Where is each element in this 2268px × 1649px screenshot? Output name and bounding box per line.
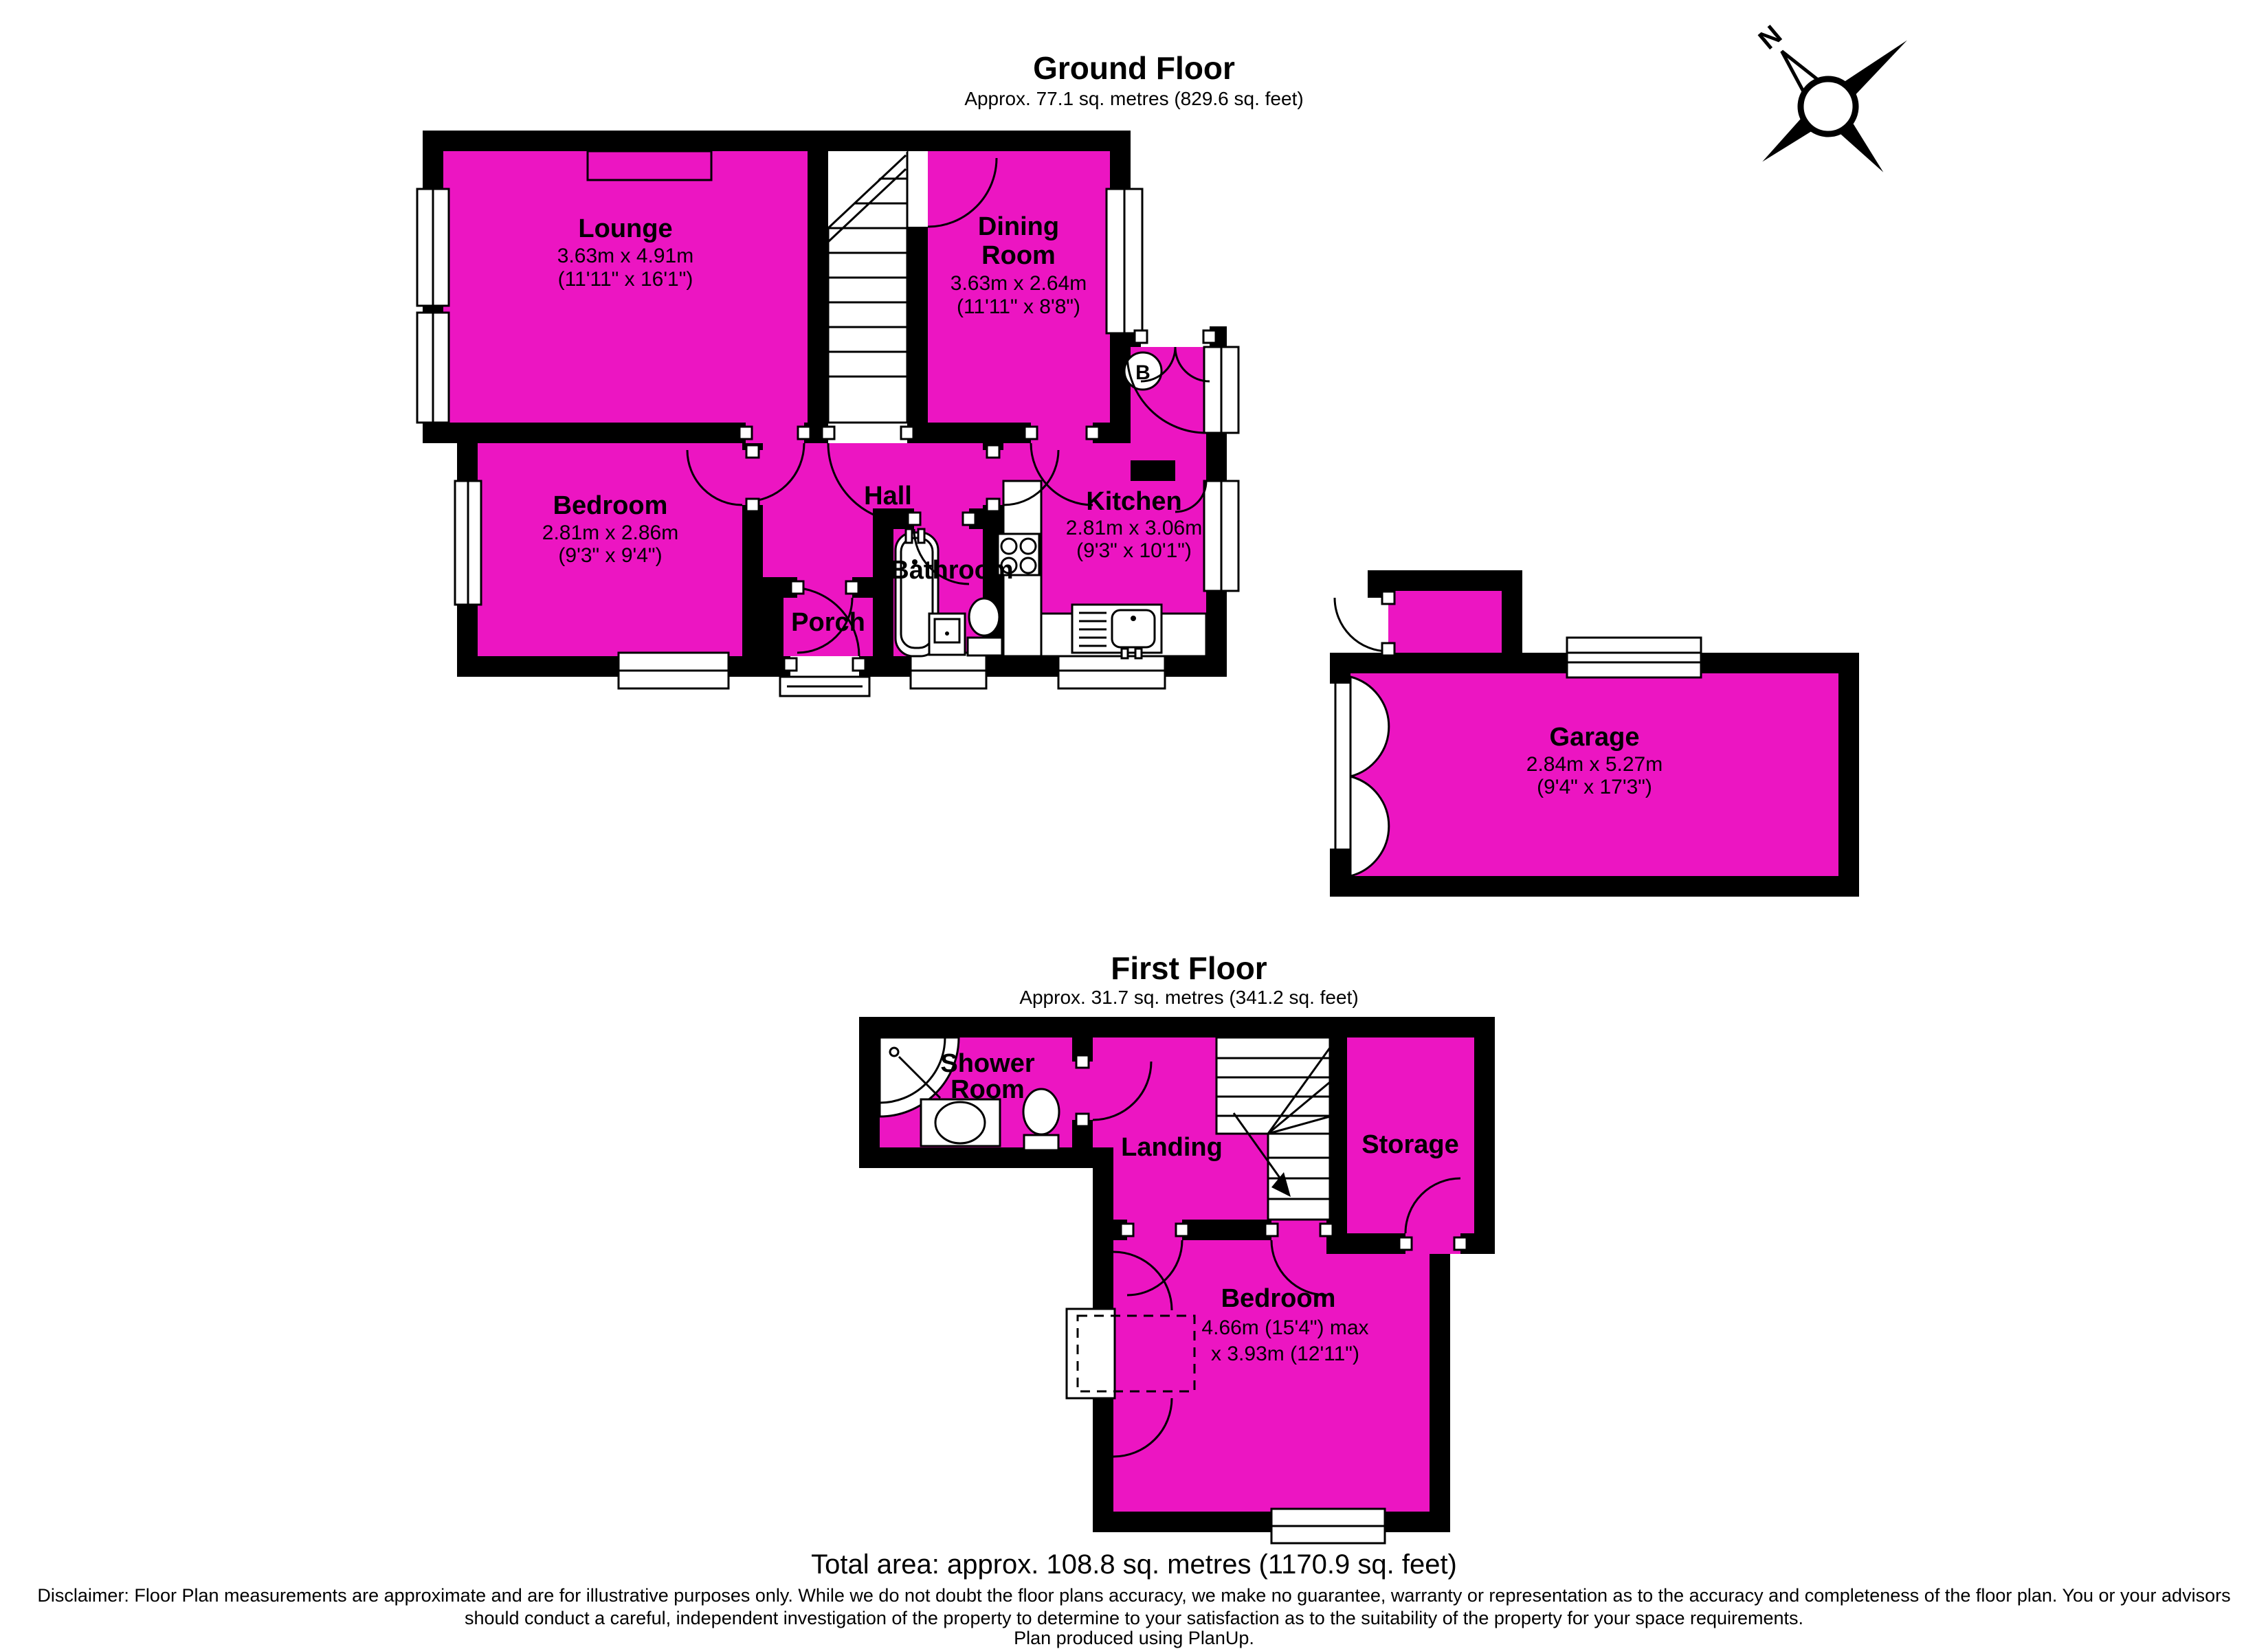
bedroom-ff-dims-2: x 3.93m (12'11") xyxy=(1211,1343,1359,1365)
dining-dims-imperial: (11'11" x 8'8") xyxy=(957,295,1080,318)
compass-north-label: N xyxy=(1753,20,1788,56)
lounge-dims-imperial: (11'11" x 16'1") xyxy=(558,268,693,291)
porch-label: Porch xyxy=(791,608,865,637)
garage-window xyxy=(1567,638,1701,677)
kitchen-dims-metric: 2.81m x 3.06m xyxy=(1066,517,1202,539)
porch-step xyxy=(780,677,869,696)
bathroom-label: Bathroom xyxy=(890,556,1013,585)
floor-plan-page: Ground Floor Approx. 77.1 sq. metres (82… xyxy=(0,0,2268,1649)
ground-floor-plan: B xyxy=(417,131,1238,696)
hall-label: Hall xyxy=(864,482,912,511)
landing-label: Landing xyxy=(1121,1133,1223,1162)
sink-icon xyxy=(921,1099,1000,1146)
window xyxy=(417,189,449,306)
room-hall-lower xyxy=(763,508,873,577)
window xyxy=(1107,189,1142,333)
storage-label: Storage xyxy=(1361,1130,1458,1159)
dining-label-2: Room xyxy=(981,241,1056,270)
sink-icon xyxy=(929,614,965,655)
staircase-ground xyxy=(828,151,907,423)
bedroom-gf-dims-metric: 2.81m x 2.86m xyxy=(542,521,678,544)
dining-label-1: Dining xyxy=(978,212,1059,241)
kitchen-dims-imperial: (9'3" x 10'1") xyxy=(1076,539,1192,562)
lounge-dims-metric: 3.63m x 4.91m xyxy=(557,245,693,267)
garage-plan: Garage 2.84m x 5.27m (9'4" x 17'3") xyxy=(1330,570,1859,897)
bedroom-ff-dims-1: 4.66m (15'4") max xyxy=(1201,1316,1368,1339)
bedroom-gf-dims-imperial: (9'3" x 9'4") xyxy=(558,544,662,567)
window xyxy=(1204,347,1238,433)
kitchen-label: Kitchen xyxy=(1086,487,1181,516)
window xyxy=(911,653,986,688)
window xyxy=(619,653,729,688)
toilet-icon xyxy=(1023,1089,1059,1150)
bedroom-gf-label: Bedroom xyxy=(553,491,668,520)
dining-dims-metric: 3.63m x 2.64m xyxy=(950,272,1087,295)
first-floor-plan: Shower Room Landing Storage Bedroom 4.66… xyxy=(859,1017,1495,1543)
floor-plan-canvas: B xyxy=(0,0,2268,1649)
window xyxy=(1271,1509,1385,1543)
garage-label: Garage xyxy=(1550,723,1640,752)
compass-rose: N xyxy=(1695,0,1962,227)
bedroom-recess xyxy=(1067,1309,1115,1398)
garage-dims-imperial: (9'4" x 17'3") xyxy=(1537,776,1652,798)
shower-room-label-1: Shower xyxy=(940,1049,1034,1078)
window xyxy=(455,481,481,605)
window xyxy=(1058,653,1165,688)
window xyxy=(1204,481,1238,591)
garage-dims-metric: 2.84m x 5.27m xyxy=(1526,753,1663,776)
room-bedroom-ff xyxy=(1113,1240,1430,1512)
kitchen-sink-icon xyxy=(1072,605,1161,658)
bedroom-ff-label: Bedroom xyxy=(1221,1284,1336,1313)
window xyxy=(417,313,449,423)
garage-doors xyxy=(1335,592,1394,876)
room-garage-lobby xyxy=(1388,591,1502,653)
shower-room-label-2: Room xyxy=(950,1075,1025,1104)
lounge-label: Lounge xyxy=(578,214,672,243)
toilet-icon xyxy=(968,598,1002,655)
